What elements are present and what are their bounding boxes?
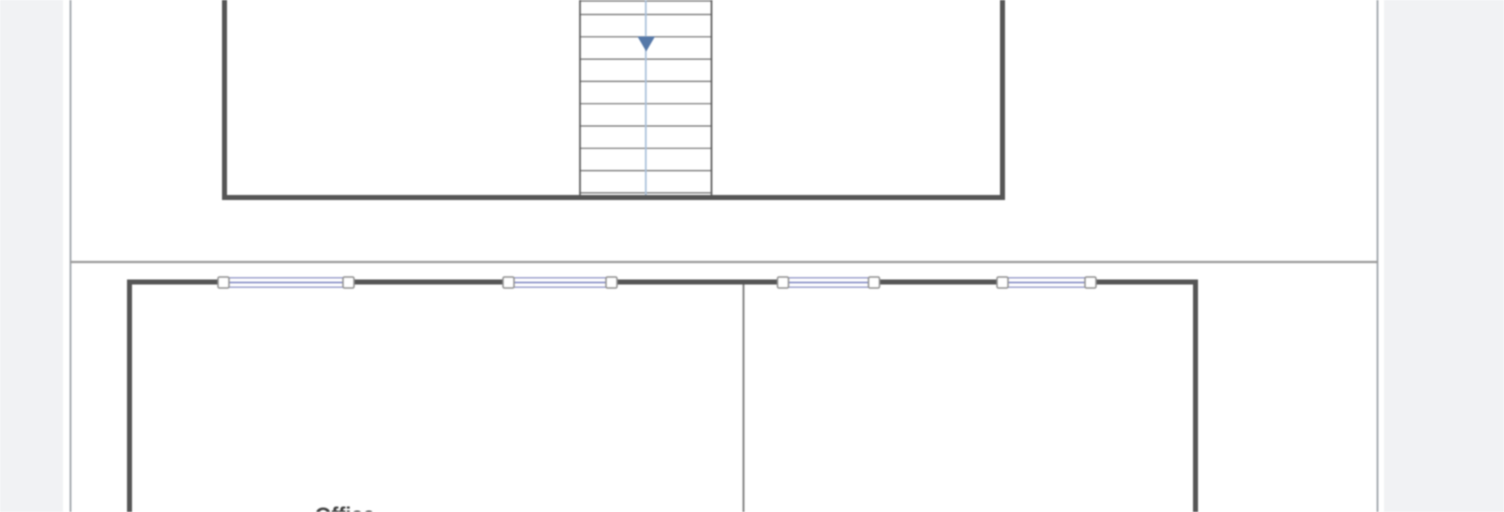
svg-text:Office: Office <box>315 504 375 512</box>
